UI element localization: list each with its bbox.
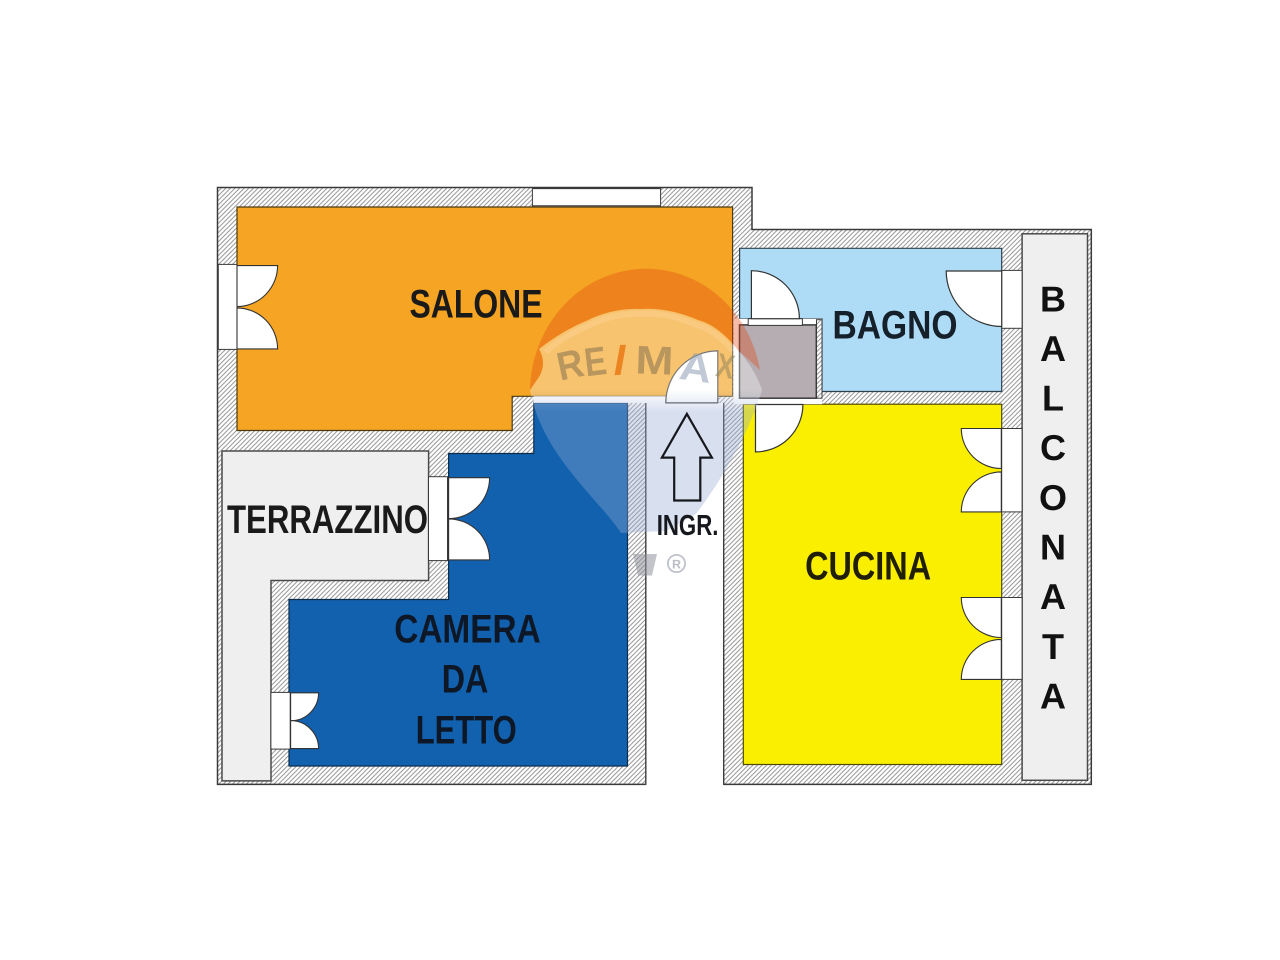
svg-text:DA: DA [442, 658, 489, 702]
svg-text:A: A [677, 344, 715, 392]
svg-text:C: C [1040, 427, 1066, 468]
svg-text:TERRAZZINO: TERRAZZINO [227, 498, 428, 542]
svg-text:LETTO: LETTO [416, 708, 517, 752]
svg-text:A: A [1040, 328, 1066, 369]
svg-text:T: T [1042, 626, 1064, 667]
svg-text:BAGNO: BAGNO [833, 304, 958, 348]
svg-text:CUCINA: CUCINA [805, 544, 931, 588]
svg-text:SALONE: SALONE [410, 283, 543, 327]
svg-text:A: A [1040, 576, 1066, 617]
svg-text:O: O [1039, 477, 1067, 518]
svg-text:A: A [1040, 676, 1066, 717]
svg-text:CAMERA: CAMERA [394, 608, 541, 652]
svg-text:B: B [1040, 278, 1066, 319]
svg-text:L: L [1042, 378, 1064, 419]
svg-text:/: / [612, 339, 628, 384]
svg-text:M: M [635, 338, 675, 383]
svg-text:N: N [1040, 527, 1066, 568]
svg-text:R: R [672, 558, 681, 572]
svg-text:INGR.: INGR. [657, 510, 719, 542]
